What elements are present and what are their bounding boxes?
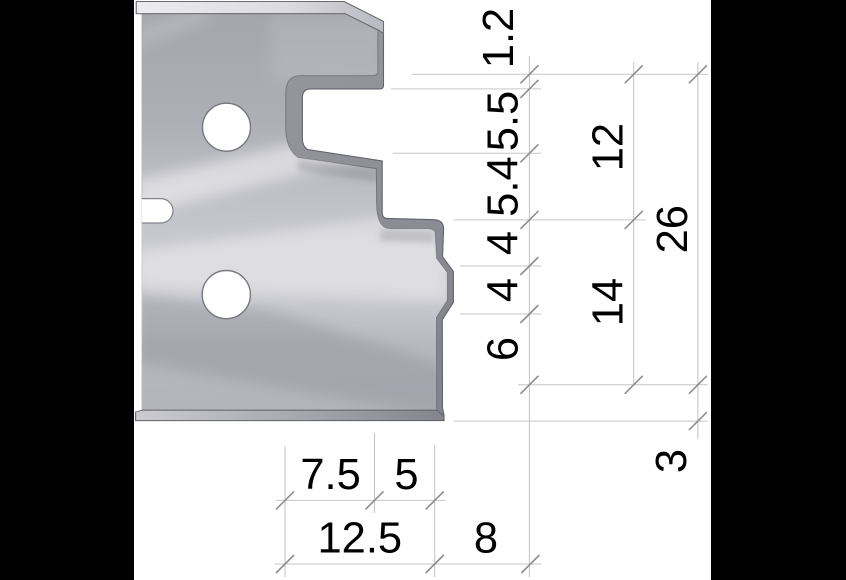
svg-text:5: 5 (394, 451, 418, 499)
svg-text:4: 4 (480, 231, 528, 255)
svg-text:5.5: 5.5 (480, 91, 528, 151)
svg-text:3: 3 (648, 449, 696, 473)
svg-text:5.4: 5.4 (480, 156, 528, 216)
svg-text:7.5: 7.5 (300, 451, 360, 499)
svg-text:26: 26 (649, 205, 697, 253)
svg-text:4: 4 (480, 278, 528, 302)
svg-text:1.2: 1.2 (475, 8, 523, 68)
svg-text:14: 14 (585, 278, 633, 326)
svg-text:6: 6 (480, 337, 528, 361)
svg-text:12: 12 (585, 123, 633, 171)
svg-text:12.5: 12.5 (317, 515, 402, 563)
svg-text:8: 8 (474, 515, 498, 563)
